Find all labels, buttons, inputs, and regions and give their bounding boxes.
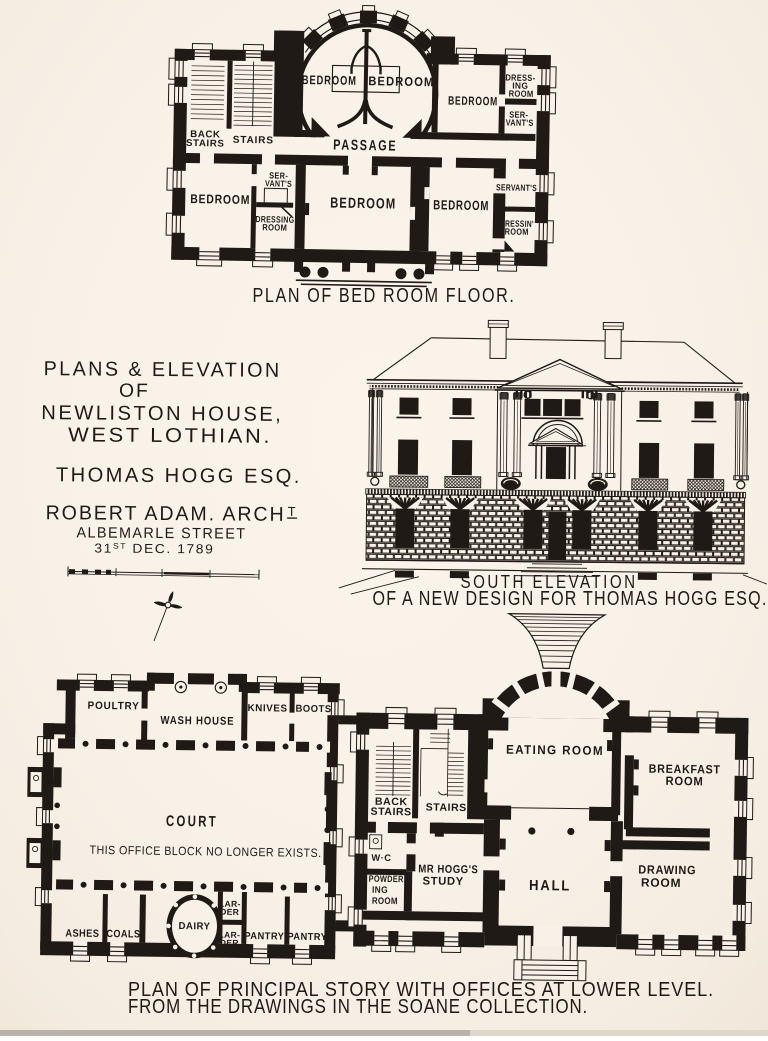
svg-text:BEDROOM: BEDROOM [302, 73, 357, 88]
svg-text:W·C: W·C [371, 853, 391, 863]
svg-text:STAIRS: STAIRS [233, 135, 274, 147]
svg-text:THOMAS HOGG ESQ.: THOMAS HOGG ESQ. [56, 464, 302, 488]
svg-text:SERVANT'S: SERVANT'S [496, 182, 537, 193]
svg-text:BEDROOM: BEDROOM [330, 195, 396, 212]
svg-text:OF: OF [119, 381, 150, 402]
svg-text:ING: ING [372, 885, 388, 895]
svg-text:PLANS & ELEVATION: PLANS & ELEVATION [44, 358, 282, 382]
svg-text:STUDY: STUDY [422, 875, 463, 888]
svg-text:STAIRS: STAIRS [370, 806, 411, 819]
svg-text:PANTRY: PANTRY [244, 931, 284, 943]
svg-text:PANTRY: PANTRY [287, 932, 327, 944]
svg-text:BEDROOM: BEDROOM [433, 197, 489, 213]
svg-text:BEDROOM: BEDROOM [448, 93, 498, 108]
svg-text:ROOM: ROOM [641, 876, 682, 891]
svg-text:COURT: COURT [166, 813, 218, 831]
svg-text:WASH HOUSE: WASH HOUSE [160, 715, 234, 728]
svg-text:OF A NEW DESIGN FOR THOMAS HOG: OF A NEW DESIGN FOR THOMAS HOGG ESQ. [373, 588, 768, 610]
svg-text:VANT'S: VANT'S [265, 178, 292, 188]
svg-text:DER: DER [220, 907, 240, 917]
svg-text:POULTRY: POULTRY [87, 700, 139, 713]
svg-text:ASHES: ASHES [65, 927, 99, 939]
svg-text:VANT'S: VANT'S [506, 118, 534, 128]
svg-text:ROBERT ADAM. ARCH: ROBERT ADAM. ARCH [46, 502, 286, 526]
svg-text:KNIVES: KNIVES [247, 703, 287, 715]
svg-text:MR HOGG'S: MR HOGG'S [418, 863, 478, 876]
svg-text:COALS: COALS [106, 928, 140, 940]
svg-text:HALL: HALL [529, 878, 571, 895]
svg-text:ROOM: ROOM [372, 896, 398, 906]
svg-text:ROOM: ROOM [509, 89, 534, 99]
svg-text:ROOM: ROOM [665, 774, 703, 789]
svg-text:PLAN OF BED ROOM FLOOR.: PLAN OF BED ROOM FLOOR. [253, 285, 516, 307]
svg-text:STAIRS: STAIRS [426, 801, 467, 814]
svg-text:DAIRY: DAIRY [178, 921, 210, 932]
svg-text:NEWLISTON HOUSE,: NEWLISTON HOUSE, [41, 402, 283, 426]
svg-text:WEST LOTHIAN.: WEST LOTHIAN. [68, 424, 272, 447]
svg-text:STAIRS: STAIRS [186, 138, 225, 150]
svg-text:POWDER: POWDER [369, 874, 404, 884]
svg-text:ROOM: ROOM [262, 222, 287, 232]
svg-text:EATING ROOM: EATING ROOM [506, 743, 604, 758]
svg-text:FROM THE DRAWINGS IN THE SOANE: FROM THE DRAWINGS IN THE SOANE COLLECTIO… [128, 995, 588, 1018]
svg-text:BOOTS: BOOTS [295, 704, 331, 716]
svg-text:T: T [288, 504, 296, 519]
svg-text:31ST DEC. 1789: 31ST DEC. 1789 [94, 541, 214, 557]
svg-text:DER: DER [220, 938, 240, 948]
svg-text:BEDROOM: BEDROOM [368, 74, 434, 89]
svg-text:BEDROOM: BEDROOM [190, 192, 250, 207]
svg-text:PASSAGE: PASSAGE [333, 137, 397, 154]
svg-text:ROOM: ROOM [505, 227, 529, 237]
